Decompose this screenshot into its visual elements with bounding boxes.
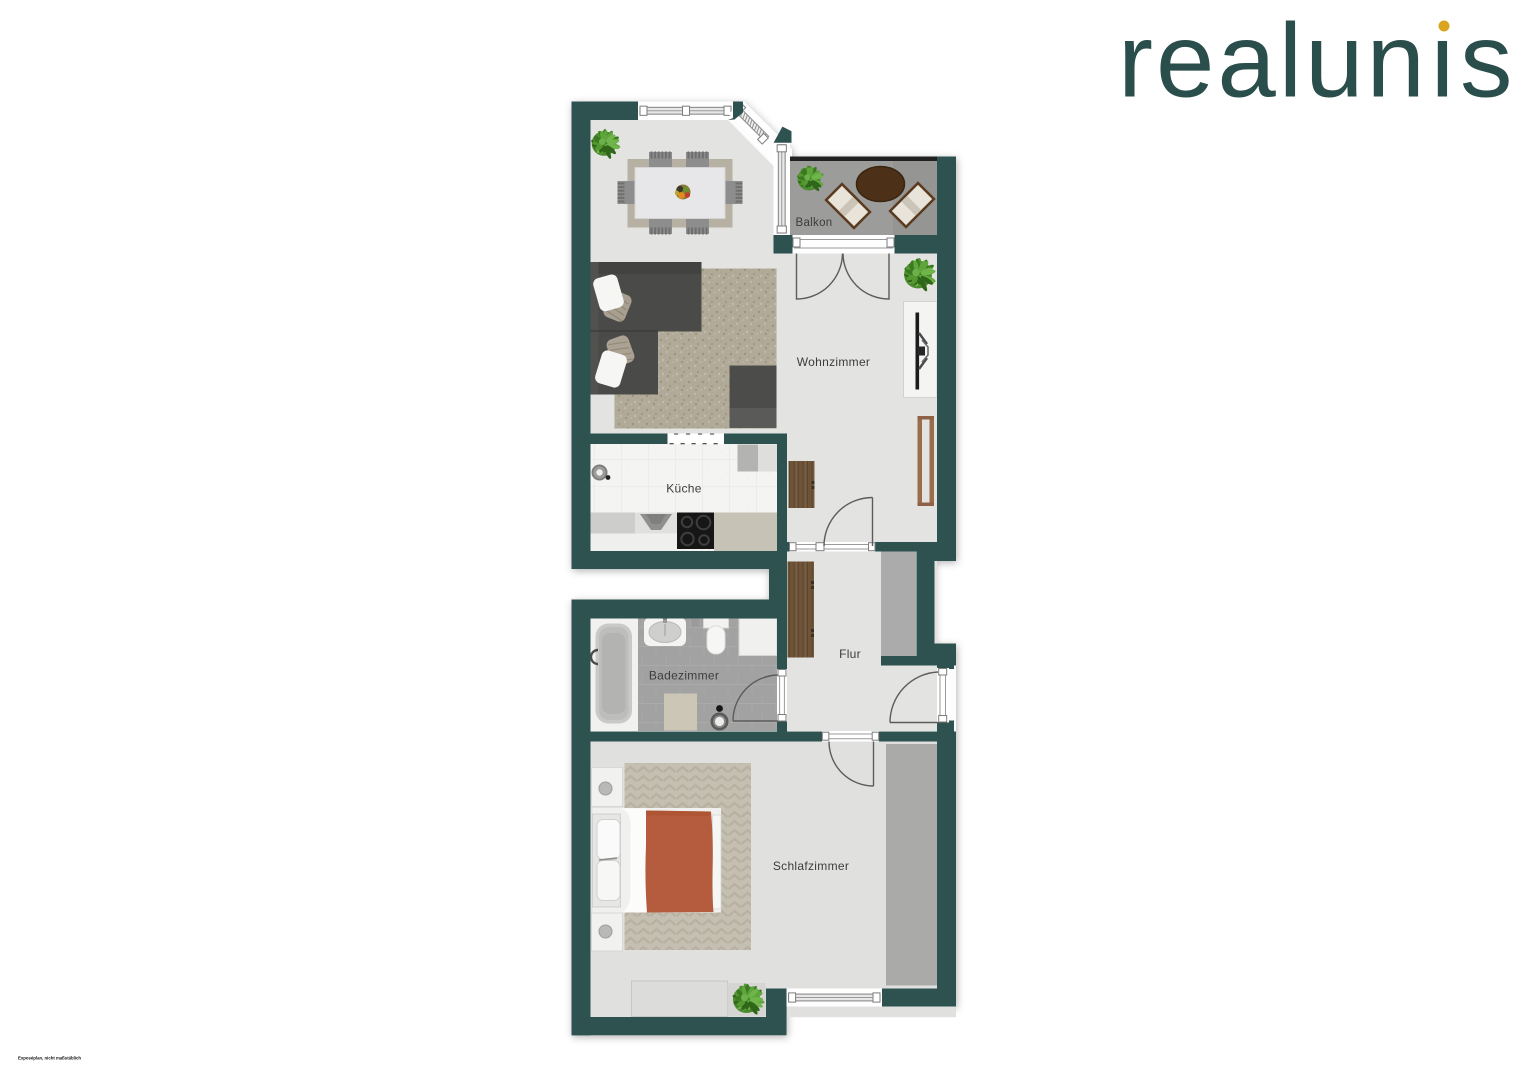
svg-text:realunıs: realunıs: [1118, 3, 1516, 120]
svg-text:Flur: Flur: [839, 647, 861, 661]
svg-text:Badezimmer: Badezimmer: [649, 669, 719, 683]
svg-text:Schlafzimmer: Schlafzimmer: [773, 859, 849, 873]
svg-text:Küche: Küche: [666, 482, 702, 496]
svg-text:Wohnzimmer: Wohnzimmer: [797, 355, 870, 369]
svg-text:Balkon: Balkon: [796, 217, 833, 229]
svg-text:Exposéplan, nicht maßstäblich: Exposéplan, nicht maßstäblich: [18, 1056, 81, 1061]
